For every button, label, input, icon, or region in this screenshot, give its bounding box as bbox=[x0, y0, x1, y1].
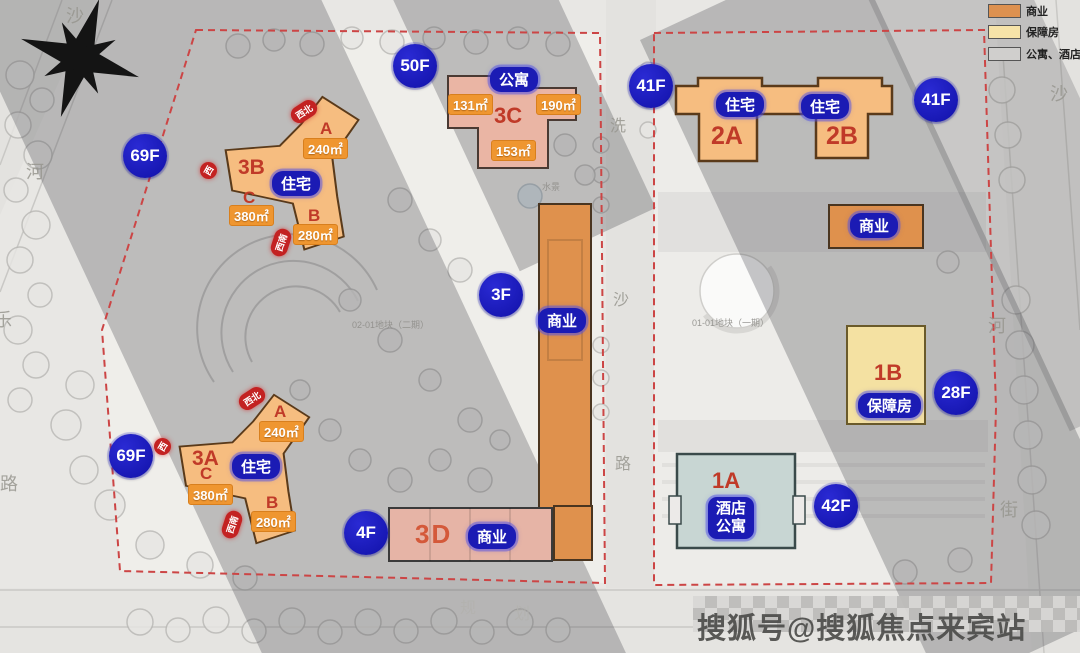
legend-label-apartment-hotel: 公寓、酒店 bbox=[1026, 46, 1080, 62]
area-badge-3a-a: 240㎡ bbox=[259, 421, 304, 442]
legend-label-commercial: 商业 bbox=[1026, 3, 1048, 19]
floor-badge-41f-right: 41F bbox=[914, 78, 958, 122]
street-label-gui-bottom: 规 bbox=[460, 594, 476, 618]
area-badge-3b-b: 280㎡ bbox=[293, 224, 338, 245]
street-label-lu-left: 路 bbox=[0, 470, 18, 496]
street-label-he-left: 河 bbox=[26, 158, 44, 184]
legend-row-apartment-hotel: 公寓、酒店 bbox=[988, 46, 1080, 62]
unit-label-3b-b: B bbox=[308, 206, 320, 226]
use-badge-3b: 住宅 bbox=[272, 171, 320, 196]
plot-label-left: 02-01地块（二期） bbox=[352, 318, 429, 331]
direction-tag-3a-w: 西 bbox=[151, 435, 174, 458]
use-badge-3d: 商业 bbox=[468, 524, 516, 549]
direction-tag-3b-nw: 西北 bbox=[288, 97, 321, 127]
site-plan: 商业 保障房 公寓、酒店 50F 69F 41F 41F 3F 28F 69F … bbox=[0, 0, 1080, 653]
use-badge-3a: 住宅 bbox=[232, 454, 280, 479]
floor-badge-50f: 50F bbox=[393, 44, 437, 88]
area-badge-3a-b: 280㎡ bbox=[251, 511, 296, 532]
street-label-hua-bottom: 划 bbox=[514, 600, 530, 624]
legend-swatch-affordable bbox=[988, 25, 1021, 39]
plot-label-water: 水景 bbox=[542, 180, 560, 193]
street-label-sha-topleft: 沙 bbox=[66, 2, 84, 28]
unit-label-3a-b: B bbox=[266, 493, 278, 513]
watermark-text: 搜狐号@搜狐焦点来宾站 bbox=[697, 605, 1080, 647]
code-label-1a: 1A bbox=[712, 468, 740, 494]
legend-row-affordable: 保障房 bbox=[988, 24, 1059, 40]
area-badge-3c-right: 190㎡ bbox=[536, 94, 581, 115]
use-badge-1a: 酒店 公寓 bbox=[708, 497, 754, 539]
use-badge-mall-right: 商业 bbox=[850, 213, 898, 238]
floor-badge-41f-left: 41F bbox=[629, 64, 673, 108]
floor-badge-28f: 28F bbox=[934, 371, 978, 415]
code-label-3b: 3B bbox=[238, 156, 265, 180]
unit-label-3b-a: A bbox=[320, 119, 332, 139]
floor-badge-3f: 3F bbox=[479, 273, 523, 317]
code-label-1b: 1B bbox=[874, 360, 902, 386]
floor-badge-69f-bottom: 69F bbox=[109, 434, 153, 478]
street-label-sha-right: 沙 bbox=[1050, 80, 1068, 106]
unit-label-3a-a: A bbox=[274, 402, 286, 422]
street-label-jie-right: 街 bbox=[1000, 496, 1018, 522]
street-label-sha-mid: 沙 bbox=[613, 286, 629, 310]
use-badge-1b: 保障房 bbox=[858, 393, 921, 418]
area-badge-3c-left: 131㎡ bbox=[448, 94, 493, 115]
floor-badge-42f: 42F bbox=[814, 484, 858, 528]
floor-badge-4f: 4F bbox=[344, 511, 388, 555]
use-badge-1a-line2: 公寓 bbox=[716, 518, 746, 535]
code-label-3d: 3D bbox=[415, 519, 452, 550]
label-layer: 商业 保障房 公寓、酒店 50F 69F 41F 41F 3F 28F 69F … bbox=[0, 0, 1080, 653]
street-label-xi-mid: 洗 bbox=[610, 112, 626, 136]
direction-tag-3a-sw: 西南 bbox=[220, 509, 245, 541]
unit-label-3a-c: C bbox=[200, 464, 212, 484]
street-label-he-right: 河 bbox=[988, 312, 1006, 338]
code-label-2b: 2B bbox=[826, 122, 858, 151]
legend-label-affordable: 保障房 bbox=[1026, 24, 1059, 40]
area-badge-3c-bottom: 153㎡ bbox=[491, 140, 536, 161]
use-badge-3c: 公寓 bbox=[490, 67, 538, 92]
direction-tag-3b-w: 西 bbox=[197, 159, 220, 182]
use-badge-2a: 住宅 bbox=[716, 92, 764, 117]
use-badge-1a-line1: 酒店 bbox=[716, 500, 746, 517]
area-badge-3b-c: 380㎡ bbox=[229, 205, 274, 226]
area-badge-3a-c: 380㎡ bbox=[188, 484, 233, 505]
use-badge-mall-center: 商业 bbox=[538, 308, 586, 333]
street-label-lu-mid: 路 bbox=[615, 450, 631, 474]
plot-label-right: 01-01地块（一期） bbox=[692, 316, 769, 329]
code-label-2a: 2A bbox=[711, 122, 743, 151]
legend-swatch-commercial bbox=[988, 4, 1021, 18]
legend-swatch-apartment-hotel bbox=[988, 47, 1021, 61]
legend-row-commercial: 商业 bbox=[988, 3, 1048, 19]
floor-badge-69f-top: 69F bbox=[123, 134, 167, 178]
direction-tag-3b-sw: 西南 bbox=[269, 227, 294, 259]
use-badge-2b: 住宅 bbox=[801, 94, 849, 119]
area-badge-3b-a: 240㎡ bbox=[303, 138, 348, 159]
street-label-le-left: 乐 bbox=[0, 306, 12, 332]
code-label-3c: 3C bbox=[494, 103, 522, 129]
direction-tag-3a-nw: 西北 bbox=[236, 384, 269, 414]
